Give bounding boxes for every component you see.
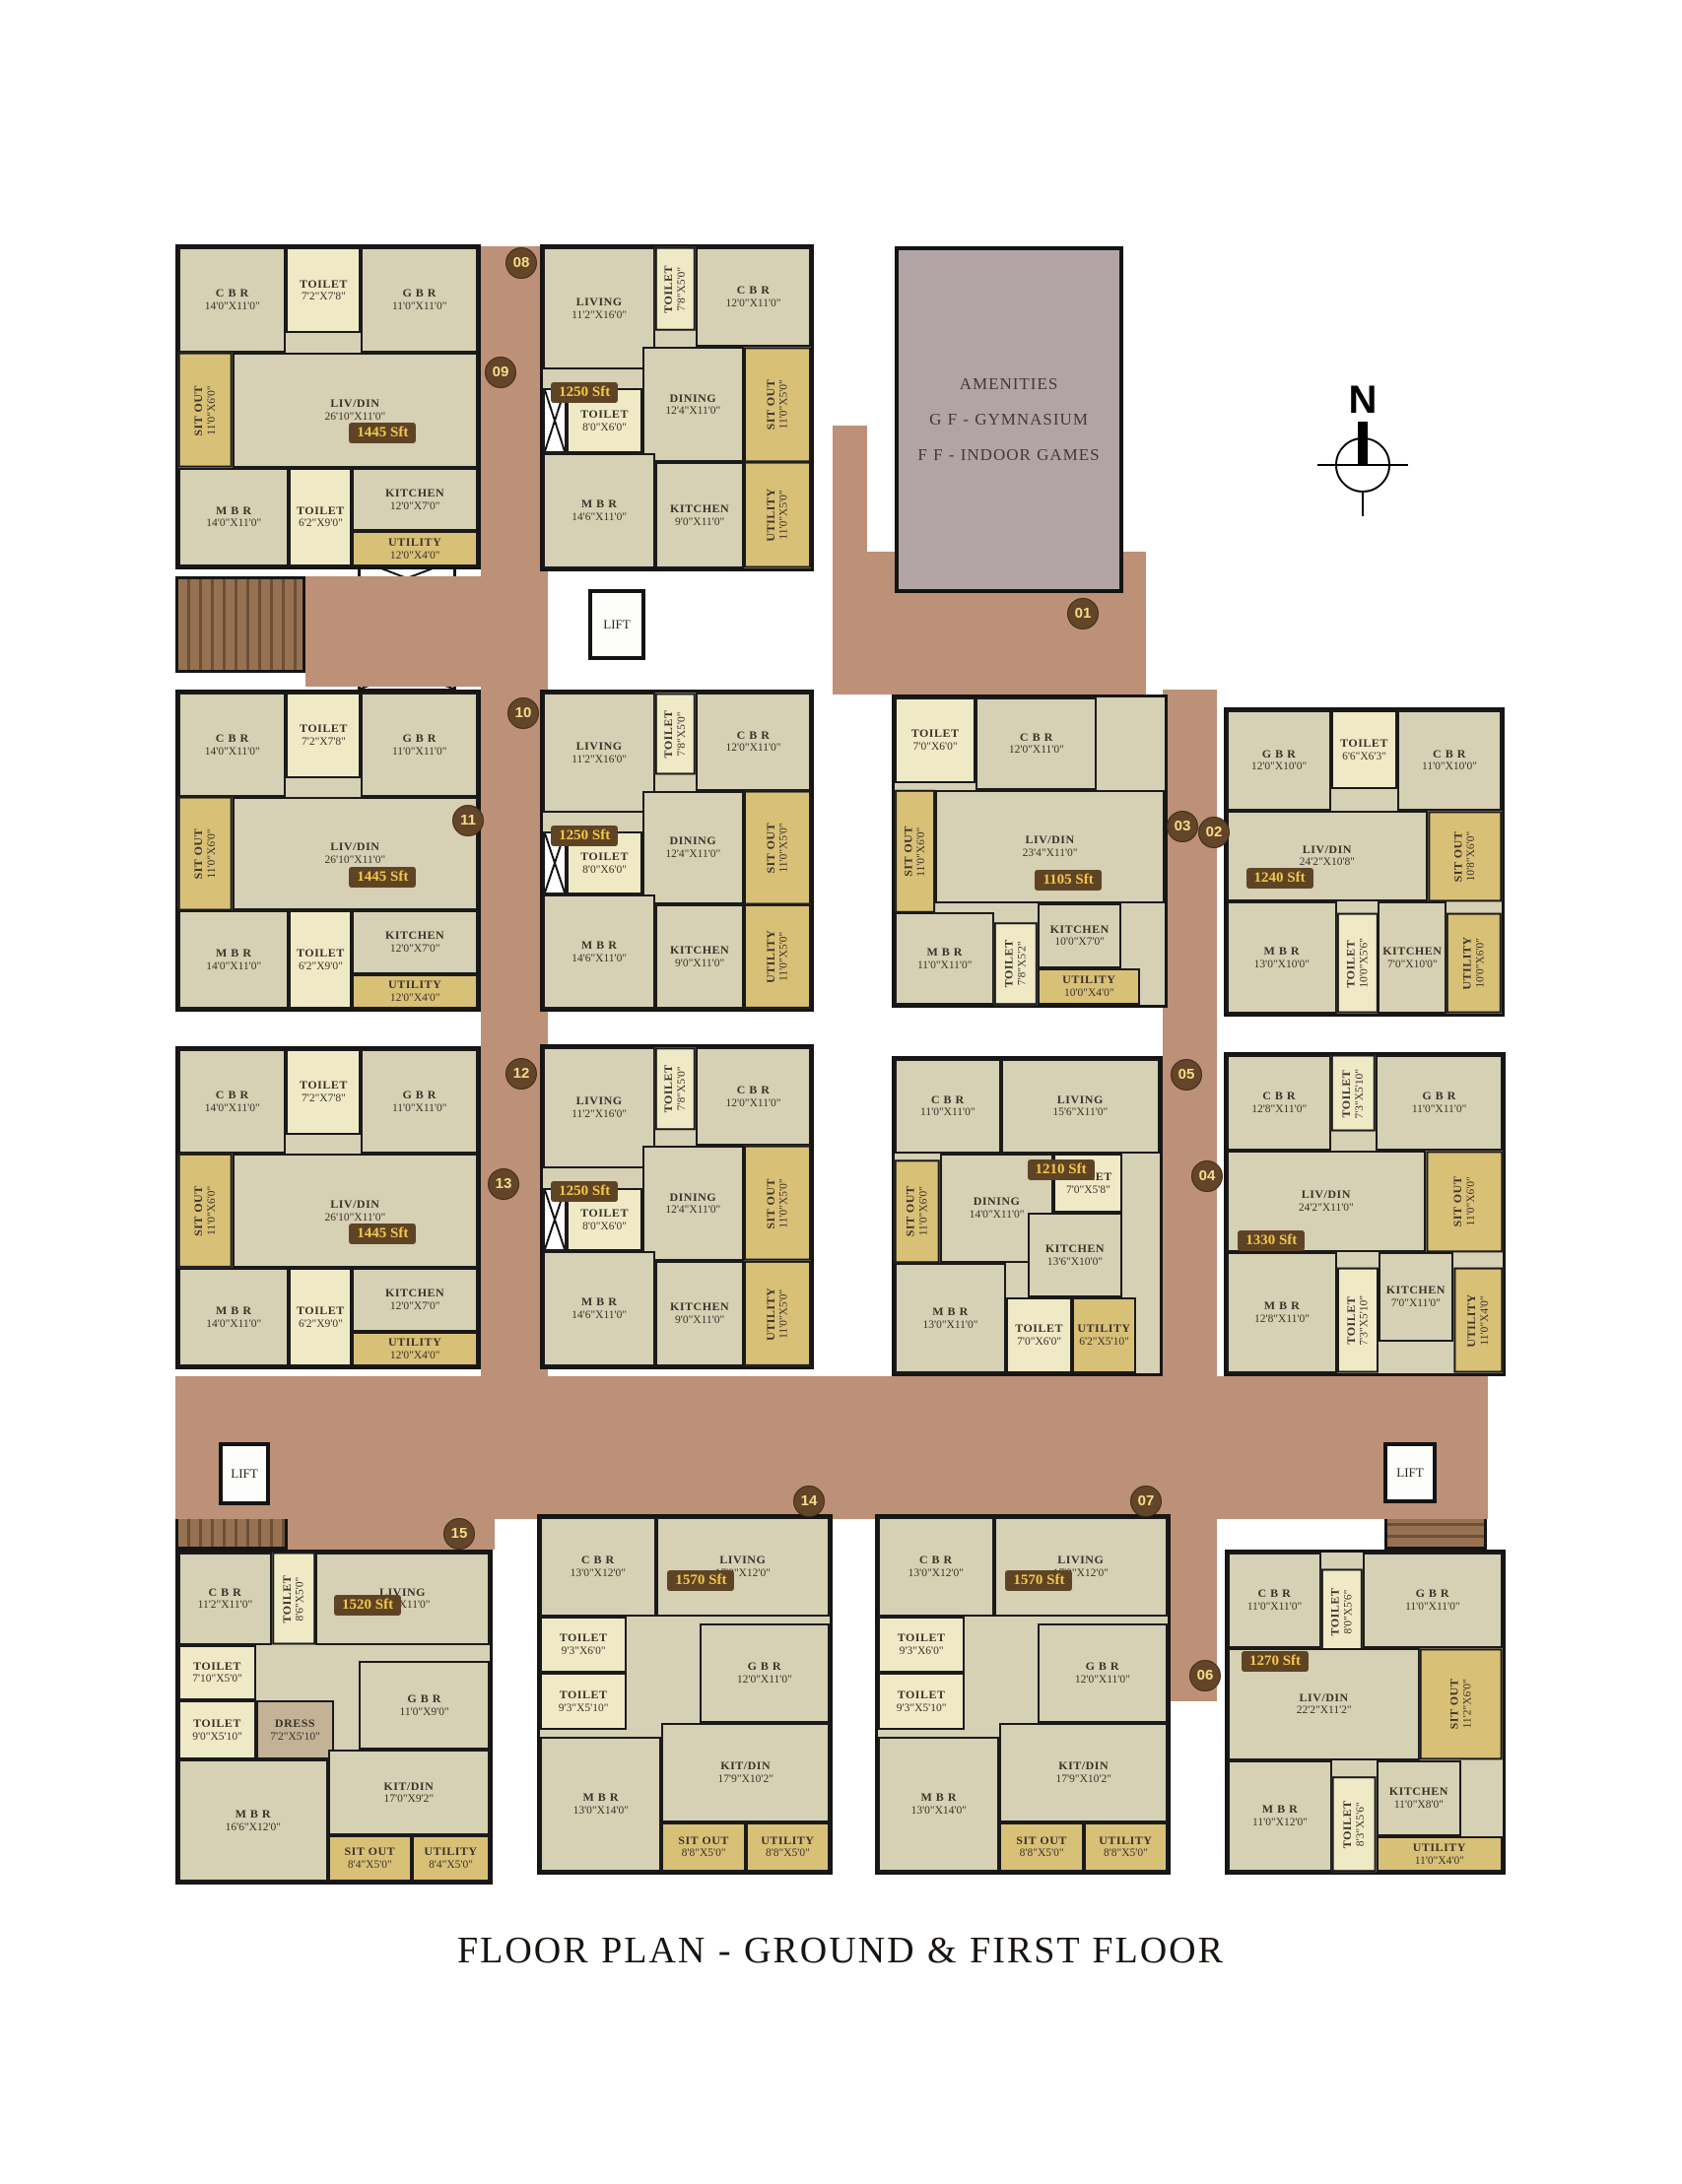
room-name: KITCHEN xyxy=(670,944,729,958)
area-badge: 1570 Sft xyxy=(667,1570,734,1591)
unit-03: TOILET7'0"X6'0"C B R12'0"X11'0"SIT OUT11… xyxy=(892,695,1168,1008)
room-living: LIVING15'6"X11'0" xyxy=(1001,1059,1160,1154)
room-toilet: TOILET7'8"X5'0" xyxy=(655,247,696,331)
room-dims: 7'8"X5'2" xyxy=(1017,941,1030,985)
room-dims: 11'0"X6'0" xyxy=(915,827,928,876)
room-toilet: TOILET9'3"X5'10" xyxy=(878,1673,965,1730)
room-name: TOILET xyxy=(560,1688,608,1702)
room-name: LIV/DIN xyxy=(1300,1691,1349,1705)
room-living: LIVING11'2"X16'0" xyxy=(543,1047,655,1168)
room-name: LIV/DIN xyxy=(1303,843,1352,857)
room-sitout: SIT OUT11'0"X6'0" xyxy=(178,797,233,911)
room-living: LIVING11'2"X16'0" xyxy=(543,247,655,369)
room-dining: DINING12'4"X11'0" xyxy=(642,791,744,905)
room-mbr: M B R14'0"X11'0" xyxy=(178,1268,289,1366)
room-dims: 13'0"X11'0" xyxy=(923,1319,978,1332)
room-name: TOILET xyxy=(1344,940,1358,988)
room-dims: 12'8"X11'0" xyxy=(1251,1103,1307,1116)
room-dims: 11'0"X4'0" xyxy=(1478,1296,1491,1346)
room-dims: 8'3"X5'6" xyxy=(1355,1802,1368,1846)
corridor-segment xyxy=(305,576,481,687)
room-toilet: TOILET9'3"X5'10" xyxy=(540,1673,627,1730)
room-name: UTILITY xyxy=(765,489,778,542)
room-name: KITCHEN xyxy=(385,487,444,500)
room-mbr: M B R14'0"X11'0" xyxy=(178,910,289,1009)
area-badge: 1270 Sft xyxy=(1242,1651,1309,1672)
room-name: DINING xyxy=(974,1195,1021,1209)
room-name: UTILITY xyxy=(1413,1841,1466,1855)
room-dims: 22'2"X11'2" xyxy=(1297,1704,1352,1717)
room-cbr: C B R12'8"X11'0" xyxy=(1227,1055,1331,1151)
room-dims: 11'2"X6'0" xyxy=(1462,1680,1475,1729)
room-dims: 8'8"X5'0" xyxy=(1020,1847,1064,1860)
unit-04: C B R12'8"X11'0"TOILET7'3"X5'10"G B R11'… xyxy=(1224,1052,1506,1376)
room-name: G B R xyxy=(402,1089,437,1102)
room-dims: 14'6"X11'0" xyxy=(572,953,627,965)
room-toilet: TOILET7'3"X5'10" xyxy=(1337,1268,1379,1373)
room-name: LIV/DIN xyxy=(330,1198,379,1212)
room-name: SIT OUT xyxy=(765,822,778,873)
room-dims: 11'0"X6'0" xyxy=(206,385,219,434)
area-badge: 1250 Sft xyxy=(551,382,618,403)
room-dims: 7'2"X5'10" xyxy=(270,1731,320,1744)
room-dims: 10'8"X6'0" xyxy=(1465,831,1478,882)
room-dims: 8'0"X5'6" xyxy=(1342,1590,1355,1634)
room-mbr: M B R11'0"X11'0" xyxy=(895,912,994,1005)
room-name: C B R xyxy=(216,287,249,300)
room-sitout: SIT OUT11'0"X6'0" xyxy=(178,353,233,468)
room-name: LIVING xyxy=(576,740,623,754)
unit-14: C B R13'0"X12'0"LIVING17'9"X12'0"TOILET9… xyxy=(537,1514,833,1875)
room-dims: 11'0"X11'0" xyxy=(920,1106,975,1119)
room-name: TOILET xyxy=(898,1688,946,1702)
room-kitchen: KITCHEN12'0"X7'0" xyxy=(352,910,478,973)
room-name: KITCHEN xyxy=(385,1287,444,1300)
room-name: G B R xyxy=(407,1692,441,1706)
room-dims: 12'0"X11'0" xyxy=(737,1674,792,1687)
room-gbr: G B R12'0"X11'0" xyxy=(700,1623,830,1723)
room-kitchen: KITCHEN12'0"X7'0" xyxy=(352,1268,478,1331)
room-name: TOILET xyxy=(662,1065,676,1113)
room-name: M B R xyxy=(1262,1803,1299,1817)
room-dims: 8'0"X6'0" xyxy=(582,1221,627,1233)
unit-11: C B R14'0"X11'0"TOILET7'2"X7'8"G B R11'0… xyxy=(175,690,481,1012)
room-gbr: G B R11'0"X11'0" xyxy=(1363,1553,1503,1648)
unit-marker-11: 11 xyxy=(452,805,484,836)
room-name: LIV/DIN xyxy=(330,840,379,854)
room-name: TOILET xyxy=(297,947,345,960)
room-dims: 7'0"X10'0" xyxy=(1387,959,1438,971)
room-dims: 11'2"X16'0" xyxy=(572,309,627,322)
room-name: TOILET xyxy=(297,504,345,518)
room-toilet: TOILET7'2"X7'8" xyxy=(286,693,361,778)
room-sitout: SIT OUT10'8"X6'0" xyxy=(1428,811,1502,901)
room-dims: 12'4"X11'0" xyxy=(665,405,720,418)
room-dims: 23'4"X11'0" xyxy=(1023,847,1078,860)
room-dims: 7'0"X6'0" xyxy=(1017,1336,1061,1349)
room-name: LIV/DIN xyxy=(330,397,379,411)
compass-horizontal-axis xyxy=(1317,464,1408,466)
room-name: KITCHEN xyxy=(1050,923,1110,937)
room-name: C B R xyxy=(1020,731,1053,745)
room-name: UTILITY xyxy=(388,978,441,992)
room-dims: 14'6"X11'0" xyxy=(572,511,627,524)
room-name: LIVING xyxy=(576,296,623,309)
unit-marker-14: 14 xyxy=(793,1486,825,1517)
room-dims: 11'0"X11'0" xyxy=(917,960,972,972)
area-badge: 1105 Sft xyxy=(1035,870,1101,891)
room-sitout: SIT OUT8'8"X5'0" xyxy=(999,1822,1083,1872)
room-dims: 12'8"X11'0" xyxy=(1254,1313,1310,1326)
room-utility: UTILITY12'0"X4'0" xyxy=(352,1332,478,1366)
room-dims: 11'0"X6'0" xyxy=(206,829,219,879)
room-utility: UTILITY11'0"X5'0" xyxy=(744,462,811,568)
room-cbr: C B R14'0"X11'0" xyxy=(178,247,286,353)
room-name: KITCHEN xyxy=(670,502,729,516)
corridor-segment xyxy=(833,426,867,554)
compass-north-label: N xyxy=(1335,378,1390,423)
room-sitout: SIT OUT8'4"X5'0" xyxy=(328,1835,412,1882)
room-name: TOILET xyxy=(1340,737,1388,751)
unit-marker-05: 05 xyxy=(1171,1059,1202,1091)
room-name: G B R xyxy=(1416,1587,1450,1601)
area-badge: 1330 Sft xyxy=(1238,1230,1305,1251)
room-mbr: M B R13'0"X14'0" xyxy=(540,1737,661,1872)
room-dims: 9'0"X11'0" xyxy=(675,1314,724,1327)
room-name: UTILITY xyxy=(1465,1294,1479,1348)
room-livdin: LIV/DIN26'10"X11'0" xyxy=(233,797,478,911)
room-kitchen: KITCHEN11'0"X8'0" xyxy=(1377,1760,1461,1837)
room-name: M B R xyxy=(1264,1299,1301,1313)
area-badge: 1520 Sft xyxy=(334,1595,401,1616)
room-dims: 11'0"X11'0" xyxy=(1405,1601,1459,1614)
room-toilet: TOILET9'0"X5'10" xyxy=(178,1700,256,1759)
room-dims: 14'0"X11'0" xyxy=(970,1209,1025,1222)
corridor-segment xyxy=(481,246,548,1519)
room-mbr: M B R12'8"X11'0" xyxy=(1227,1252,1337,1373)
amenities-gf: G F - GYMNASIUM xyxy=(929,410,1089,430)
room-living: LIVING11'2"X16'0" xyxy=(543,693,655,813)
room-dims: 12'0"X4'0" xyxy=(390,1350,440,1362)
room-dims: 12'0"X11'0" xyxy=(726,742,781,755)
room-dining: DINING12'4"X11'0" xyxy=(642,1146,744,1261)
room-name: G B R xyxy=(1086,1660,1120,1674)
room-name: DINING xyxy=(669,1191,716,1205)
room-toilet: TOILET7'0"X6'0" xyxy=(1006,1297,1072,1373)
room-dims: 12'0"X11'0" xyxy=(1009,744,1064,757)
room-cbr: C B R14'0"X11'0" xyxy=(178,693,286,797)
room-name: DRESS xyxy=(275,1717,315,1731)
floor-plan: LIFTLIFTLIFT AMENITIES G F - GYMNASIUM F… xyxy=(0,0,1682,2184)
room-name: M B R xyxy=(920,1791,957,1805)
room-cbr: C B R11'2"X11'0" xyxy=(178,1553,272,1645)
unit-15: C B R11'2"X11'0"TOILET8'6"X5'0"LIVING17'… xyxy=(175,1550,493,1885)
room-kitchen: KITCHEN10'0"X7'0" xyxy=(1038,903,1121,968)
room-kitdin: KIT/DIN17'9"X10'2" xyxy=(999,1723,1168,1822)
unit-marker-06: 06 xyxy=(1189,1660,1221,1691)
room-name: TOILET xyxy=(662,709,676,758)
room-dims: 17'0"X9'2" xyxy=(384,1793,435,1806)
room-utility: UTILITY11'0"X5'0" xyxy=(744,904,811,1009)
room-name: TOILET xyxy=(580,408,629,422)
room-toilet: TOILET6'6"X6'3" xyxy=(1331,710,1397,789)
room-name: C B R xyxy=(1262,1090,1296,1103)
room-kitchen: KITCHEN9'0"X11'0" xyxy=(655,904,744,1009)
room-sitout: SIT OUT11'0"X6'0" xyxy=(178,1154,233,1268)
room-name: UTILITY xyxy=(424,1845,477,1859)
room-name: M B R xyxy=(216,504,252,518)
room-dims: 24'2"X11'0" xyxy=(1299,1202,1354,1215)
unit-marker-15: 15 xyxy=(443,1518,475,1550)
area-badge: 1445 Sft xyxy=(349,1224,416,1244)
room-dims: 7'2"X7'8" xyxy=(302,736,346,749)
room-name: UTILITY xyxy=(765,1287,778,1340)
room-cbr: C B R12'0"X11'0" xyxy=(696,1047,811,1146)
room-dims: 11'2"X16'0" xyxy=(572,1108,627,1121)
room-name: M B R xyxy=(1264,945,1301,959)
unit-08: LIVING11'2"X16'0"TOILET7'8"X5'0"C B R12'… xyxy=(540,244,814,571)
room-dims: 11'0"X11'0" xyxy=(392,300,446,313)
room-dims: 8'4"X5'0" xyxy=(348,1859,392,1872)
room-dims: 11'2"X16'0" xyxy=(572,754,627,766)
room-dims: 11'0"X9'0" xyxy=(400,1706,449,1719)
room-dims: 13'0"X12'0" xyxy=(571,1567,626,1580)
room-name: M B R xyxy=(582,1791,619,1805)
room-name: SIT OUT xyxy=(765,379,778,430)
room-dims: 12'4"X11'0" xyxy=(665,1204,720,1217)
room-name: UTILITY xyxy=(1461,937,1475,990)
room-mbr: M B R14'6"X11'0" xyxy=(543,453,655,568)
room-dims: 12'0"X10'0" xyxy=(1251,761,1307,773)
room-dims: 8'6"X5'0" xyxy=(294,1576,306,1621)
room-dims: 8'4"X5'0" xyxy=(429,1859,473,1872)
corridor-segment xyxy=(175,1376,1488,1519)
room-name: LIV/DIN xyxy=(1025,833,1074,847)
room-name: C B R xyxy=(216,1089,249,1102)
room-name: TOILET xyxy=(1341,1800,1355,1848)
room-dims: 14'0"X11'0" xyxy=(205,746,260,759)
room-dims: 7'0"X11'0" xyxy=(1391,1297,1441,1310)
room-name: DINING xyxy=(669,834,716,848)
room-dims: 10'0"X4'0" xyxy=(1064,987,1114,1000)
amenities-ff: F F - INDOOR GAMES xyxy=(917,445,1100,465)
room-name: UTILITY xyxy=(1077,1322,1130,1336)
lift-label: LIFT xyxy=(231,1466,257,1482)
room-name: UTILITY xyxy=(1062,973,1115,987)
room-name: C B R xyxy=(737,729,771,743)
room-name: UTILITY xyxy=(1099,1834,1152,1848)
lift-room: LIFT xyxy=(588,589,645,660)
room-name: C B R xyxy=(737,284,771,298)
room-dims: 11'0"X12'0" xyxy=(1252,1817,1308,1829)
room-cbr: C B R11'0"X10'0" xyxy=(1397,710,1502,811)
room-gbr: G B R11'0"X11'0" xyxy=(361,1049,478,1154)
room-utility: UTILITY6'2"X5'10" xyxy=(1072,1297,1136,1373)
room-dims: 11'0"X6'0" xyxy=(1464,1176,1477,1225)
room-utility: UTILITY8'8"X5'0" xyxy=(1084,1822,1168,1872)
room-dims: 11'0"X6'0" xyxy=(206,1186,219,1235)
room-dims: 10'0"X5'6" xyxy=(1358,939,1371,989)
room-dims: 9'3"X6'0" xyxy=(900,1645,944,1658)
room-name: G B R xyxy=(1422,1090,1456,1103)
room-name: TOILET xyxy=(1329,1588,1343,1636)
room-name: KIT/DIN xyxy=(720,1759,771,1773)
room-name: M B R xyxy=(235,1808,272,1821)
room-utility: UTILITY8'4"X5'0" xyxy=(412,1835,490,1882)
area-badge: 1445 Sft xyxy=(349,867,416,888)
room-name: C B R xyxy=(216,732,249,746)
unit-10: LIVING11'2"X16'0"TOILET7'8"X5'0"C B R12'… xyxy=(540,690,814,1012)
room-dims: 8'0"X6'0" xyxy=(582,864,627,877)
room-dims: 11'0"X5'0" xyxy=(778,1289,791,1338)
room-name: KITCHEN xyxy=(1045,1242,1105,1256)
room-name: SIT OUT xyxy=(905,1186,918,1237)
room-dims: 6'2"X9'0" xyxy=(299,1318,343,1331)
room-name: SIT OUT xyxy=(192,1185,206,1236)
room-dims: 13'0"X14'0" xyxy=(573,1805,629,1818)
room-name: SIT OUT xyxy=(192,384,206,435)
unit-marker-03: 03 xyxy=(1167,811,1198,842)
room-toilet: TOILET7'8"X5'2" xyxy=(994,922,1038,1005)
room-dims: 11'0"X11'0" xyxy=(392,1102,446,1115)
room-name: TOILET xyxy=(911,727,960,741)
room-kitchen: KITCHEN12'0"X7'0" xyxy=(352,468,478,532)
room-cbr: C B R13'0"X12'0" xyxy=(878,1517,994,1617)
room-dims: 7'8"X5'0" xyxy=(676,711,689,756)
room-living: LIVING17'9"X12'0" xyxy=(656,1517,830,1617)
room-dims: 14'6"X11'0" xyxy=(572,1309,627,1322)
room-mbr: M B R11'0"X12'0" xyxy=(1228,1760,1332,1872)
room-name: TOILET xyxy=(580,850,629,864)
room-toilet: TOILET7'2"X7'8" xyxy=(286,247,361,333)
room-kitchen: KITCHEN7'0"X11'0" xyxy=(1379,1252,1453,1341)
room-name: TOILET xyxy=(580,1207,629,1221)
room-utility: UTILITY8'8"X5'0" xyxy=(746,1822,830,1872)
area-badge: 1445 Sft xyxy=(349,423,416,443)
room-dims: 10'0"X7'0" xyxy=(1054,936,1105,949)
room-name: TOILET xyxy=(560,1631,608,1645)
room-toilet: TOILET7'3"X5'10" xyxy=(1331,1055,1376,1132)
amenities-title: AMENITIES xyxy=(960,374,1059,394)
room-sitout: SIT OUT11'0"X6'0" xyxy=(895,1159,940,1263)
room-dims: 9'0"X11'0" xyxy=(675,958,724,970)
room-name: TOILET xyxy=(297,1304,345,1318)
room-name: KIT/DIN xyxy=(1058,1759,1109,1773)
room-dims: 12'0"X4'0" xyxy=(390,992,440,1005)
room-dims: 9'3"X6'0" xyxy=(562,1645,606,1658)
room-dims: 11'0"X5'0" xyxy=(778,380,791,430)
room-dims: 9'3"X5'10" xyxy=(897,1702,947,1715)
lift-label: LIFT xyxy=(603,617,630,632)
room-name: C B R xyxy=(581,1554,615,1567)
room-name: G B R xyxy=(402,287,437,300)
room-dims: 14'0"X11'0" xyxy=(206,517,261,530)
room-dims: 8'0"X6'0" xyxy=(582,422,627,434)
room-dims: 14'0"X11'0" xyxy=(205,300,260,313)
room-name: M B R xyxy=(926,946,963,960)
room-toilet: TOILET7'10"X5'0" xyxy=(178,1645,256,1701)
room-dims: 7'2"X7'8" xyxy=(302,291,346,303)
unit-marker-01: 01 xyxy=(1067,598,1099,629)
room-toilet: TOILET10'0"X5'6" xyxy=(1337,913,1379,1014)
room-name: C B R xyxy=(737,1084,771,1097)
room-dims: 11'0"X8'0" xyxy=(1394,1799,1444,1812)
room-name: KITCHEN xyxy=(1389,1785,1448,1799)
room-name: SIT OUT xyxy=(902,826,915,877)
room-dims: 10'0"X6'0" xyxy=(1475,939,1488,989)
room-sitout: SIT OUT11'2"X6'0" xyxy=(1420,1648,1503,1759)
unit-02: G B R12'0"X10'0"TOILET6'6"X6'3"C B R11'0… xyxy=(1224,707,1505,1017)
room-name: M B R xyxy=(216,1304,252,1318)
room-dims: 8'8"X5'0" xyxy=(1104,1847,1148,1860)
room-name: LIVING xyxy=(1057,1554,1104,1567)
room-dims: 12'0"X11'0" xyxy=(1075,1674,1130,1687)
room-name: C B R xyxy=(208,1586,241,1600)
room-dims: 17'9"X10'2" xyxy=(1056,1773,1111,1786)
unit-marker-02: 02 xyxy=(1198,817,1230,848)
room-name: SIT OUT xyxy=(1448,1679,1462,1730)
room-name: G B R xyxy=(402,732,437,746)
room-mbr: M B R13'0"X11'0" xyxy=(895,1263,1006,1373)
room-toilet: TOILET8'6"X5'0" xyxy=(272,1553,315,1645)
room-livdin: LIV/DIN26'10"X11'0" xyxy=(233,1154,478,1268)
unit-09: C B R14'0"X11'0"TOILET7'2"X7'8"G B R11'0… xyxy=(175,244,481,569)
room-name: TOILET xyxy=(300,722,348,736)
room-name: TOILET xyxy=(1015,1322,1063,1336)
unit-marker-10: 10 xyxy=(507,697,539,729)
room-name: SIT OUT xyxy=(345,1845,396,1859)
room-dims: 13'6"X10'0" xyxy=(1047,1256,1103,1269)
room-toilet: TOILET6'2"X9'0" xyxy=(289,910,352,1009)
room-sitout: SIT OUT11'0"X5'0" xyxy=(744,791,811,905)
room-name: TOILET xyxy=(1345,1296,1359,1345)
room-name: LIVING xyxy=(576,1094,623,1108)
room-sitout: SIT OUT11'0"X5'0" xyxy=(744,347,811,462)
room-utility: UTILITY10'0"X6'0" xyxy=(1447,913,1502,1014)
room-dims: 16'6"X12'0" xyxy=(226,1821,281,1834)
unit-marker-13: 13 xyxy=(488,1168,519,1200)
room-name: TOILET xyxy=(300,1079,348,1092)
room-sitout: SIT OUT11'0"X6'0" xyxy=(1426,1151,1503,1252)
room-dims: 11'0"X5'0" xyxy=(778,823,791,872)
unit-05: C B R11'0"X11'0"LIVING15'6"X11'0"SIT OUT… xyxy=(892,1056,1163,1376)
room-dims: 6'2"X5'10" xyxy=(1079,1336,1129,1349)
room-gbr: G B R12'0"X10'0" xyxy=(1227,710,1331,811)
staircase xyxy=(175,576,305,673)
room-dims: 26'10"X11'0" xyxy=(325,1212,386,1224)
room-mbr: M B R14'6"X11'0" xyxy=(543,1251,655,1366)
room-toilet: TOILET6'2"X9'0" xyxy=(289,1268,352,1366)
room-cbr: C B R12'0"X11'0" xyxy=(696,247,811,347)
room-dims: 6'6"X6'3" xyxy=(1342,751,1386,763)
page-title: FLOOR PLAN - GROUND & FIRST FLOOR xyxy=(0,1929,1682,1972)
room-cbr: C B R11'0"X11'0" xyxy=(895,1059,1001,1154)
room-dims: 8'8"X5'0" xyxy=(682,1847,726,1860)
room-name: M B R xyxy=(216,947,252,960)
room-mbr: M B R16'6"X12'0" xyxy=(178,1759,328,1882)
room-utility: UTILITY12'0"X4'0" xyxy=(352,531,478,566)
room-dims: 11'0"X4'0" xyxy=(1415,1855,1464,1868)
room-name: C B R xyxy=(931,1093,965,1107)
room-dims: 24'2"X10'8" xyxy=(1300,856,1355,869)
room-name: DINING xyxy=(669,392,716,406)
room-dims: 9'3"X5'10" xyxy=(559,1702,609,1715)
room-dims: 11'0"X10'0" xyxy=(1422,761,1477,773)
room-name: UTILITY xyxy=(388,1336,441,1350)
room-dims: 13'0"X12'0" xyxy=(908,1567,964,1580)
room-mbr: M B R14'0"X11'0" xyxy=(178,468,289,566)
lift-room: LIFT xyxy=(1383,1442,1437,1503)
